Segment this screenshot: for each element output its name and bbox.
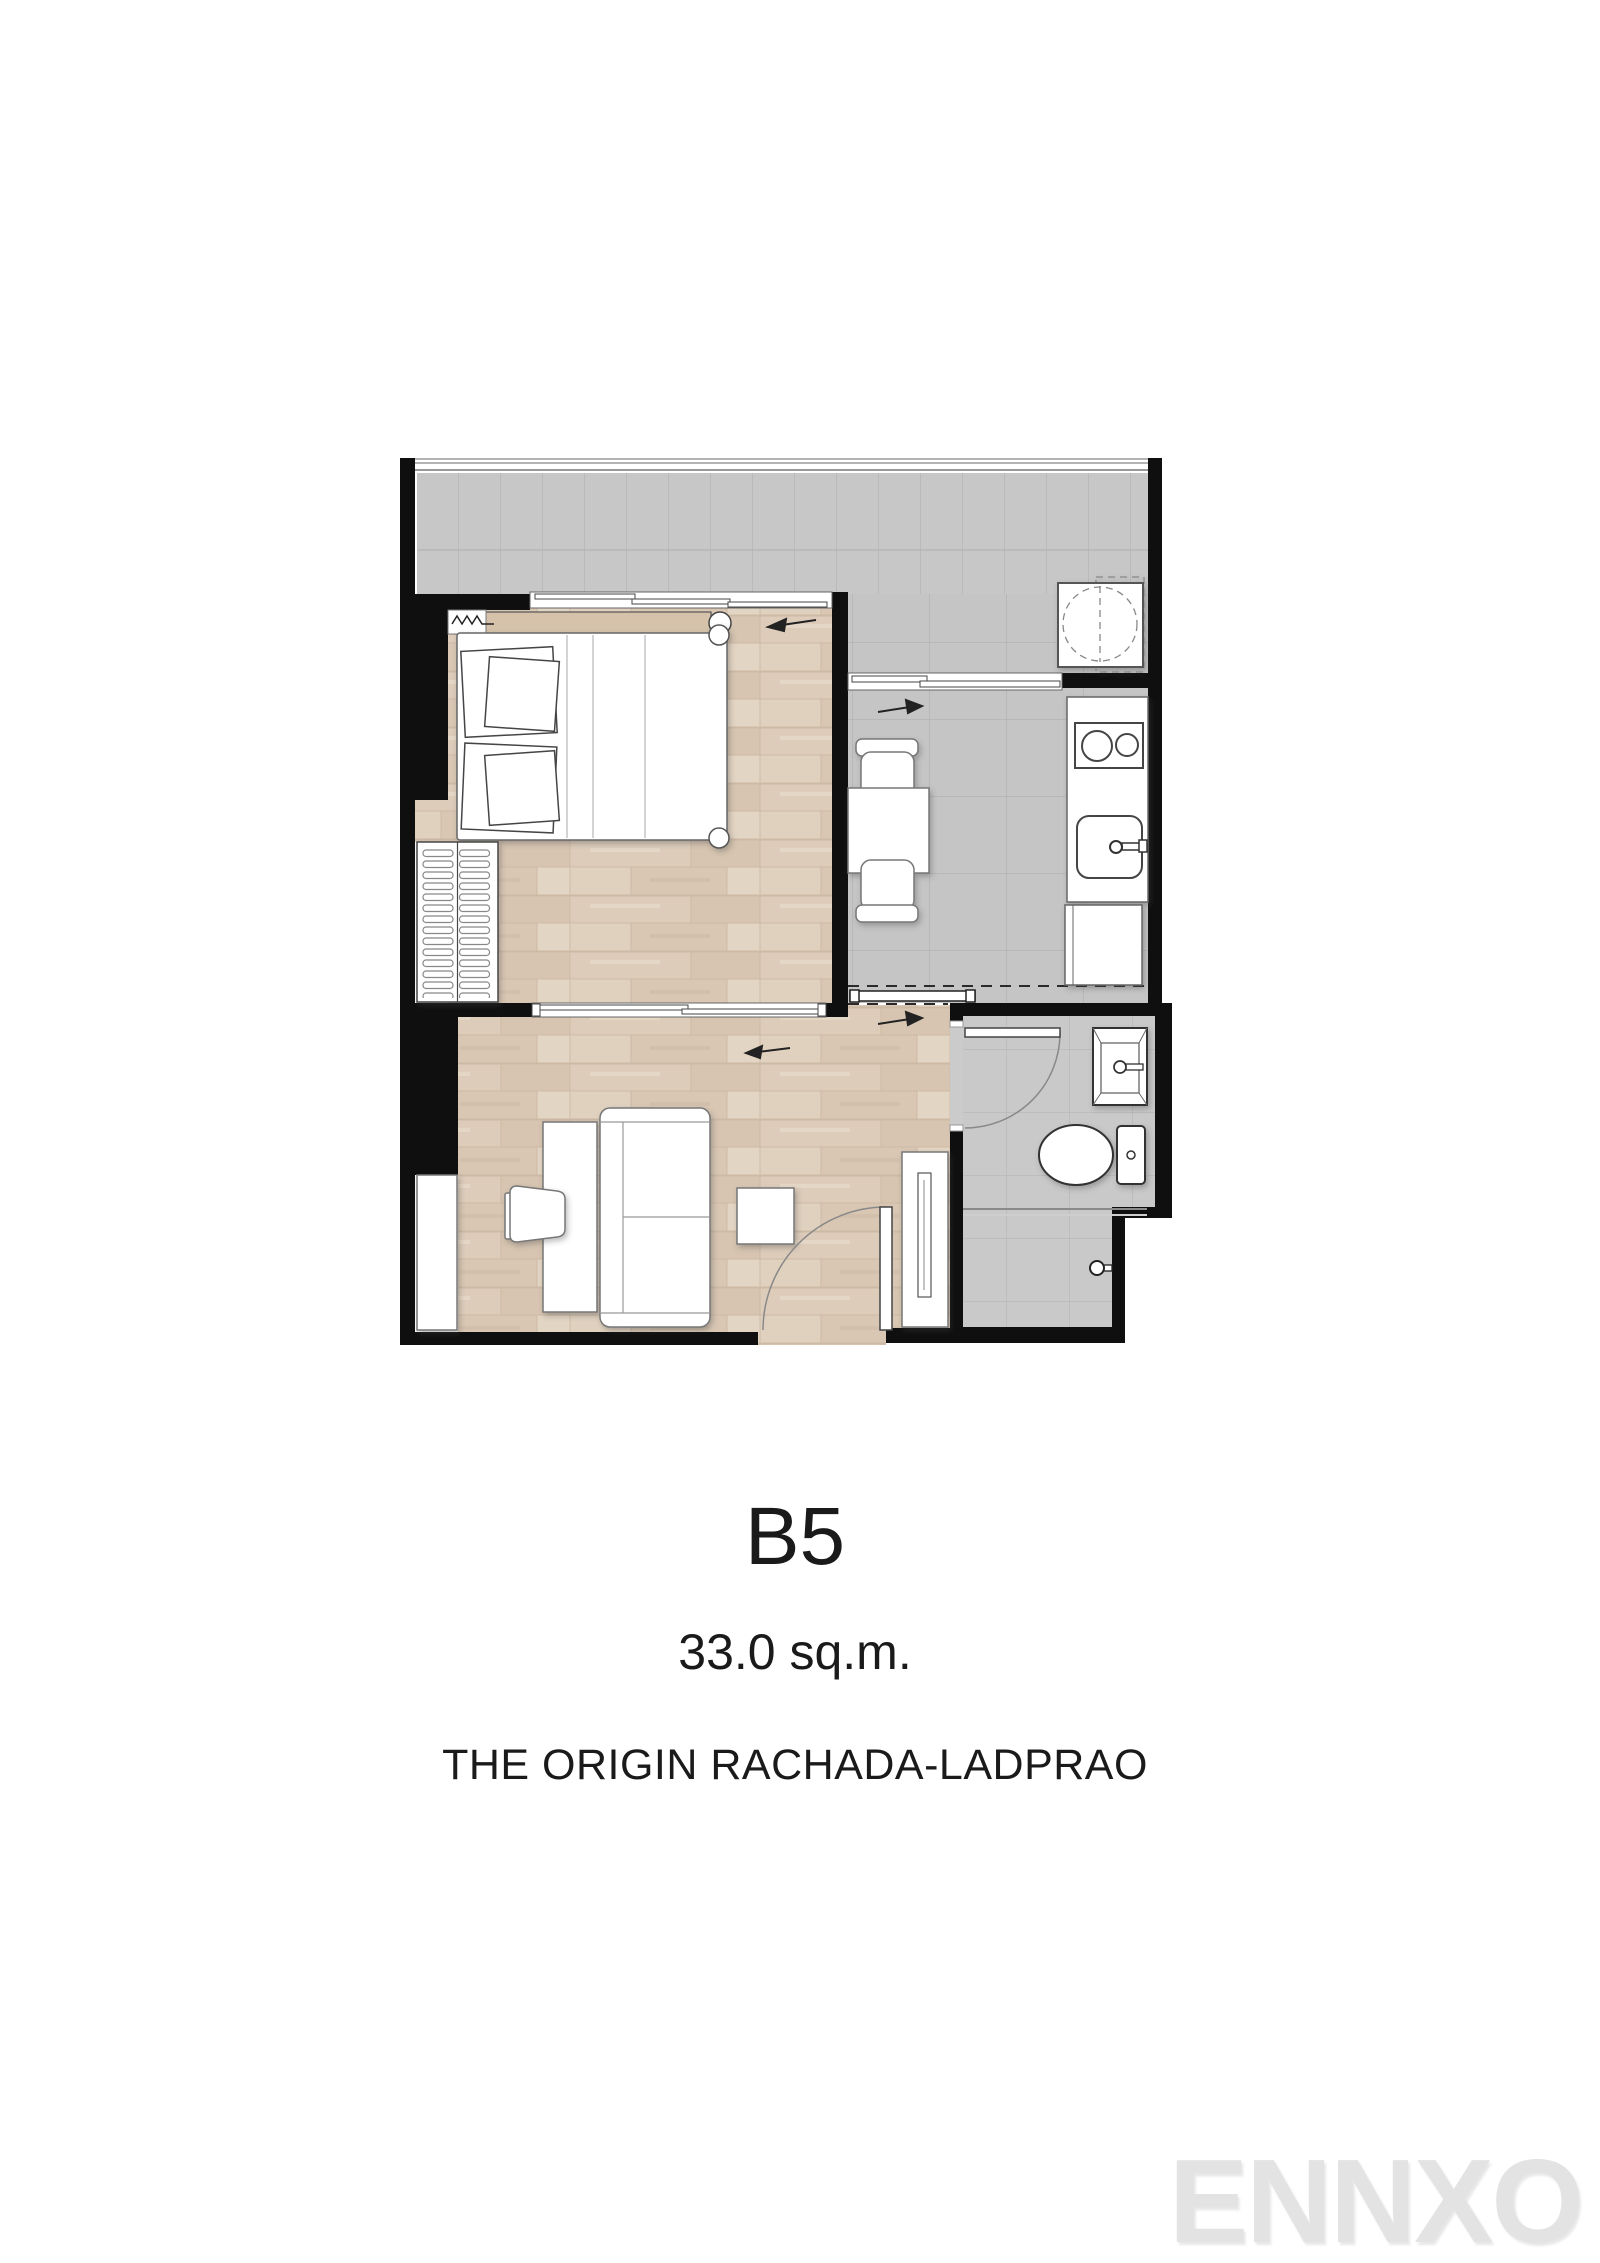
sliding-window-balcony-kitchen: [848, 673, 1062, 690]
kitchen-cabinet: [1065, 905, 1142, 985]
washing-machine: [1058, 577, 1144, 672]
desk-chair: [505, 1186, 565, 1242]
wardrobe: [417, 842, 498, 1002]
unit-area: 33.0 sq.m.: [395, 1627, 1195, 1677]
floor-plan: [0, 0, 1600, 2263]
tv-cabinet: [902, 1152, 948, 1327]
watermark: ENNXO: [1169, 2142, 1582, 2261]
toilet-icon: [1039, 1125, 1145, 1185]
balcony-railing: [415, 459, 1148, 470]
unit-code: B5: [395, 1496, 1195, 1578]
dining-chair: [856, 860, 918, 922]
floor-plan-page: B5 33.0 sq.m. THE ORIGIN RACHADA-LADPRAO…: [0, 0, 1600, 2263]
kitchen-sink-icon: [1077, 816, 1147, 878]
curtain-rail: [448, 610, 731, 634]
stove-icon: [1075, 723, 1143, 768]
kitchen-counter: [1067, 697, 1148, 902]
sofa: [600, 1108, 710, 1327]
wash-basin-icon: [1093, 1028, 1147, 1105]
storage-cabinet: [417, 1175, 457, 1330]
side-table: [737, 1188, 794, 1244]
bed: [457, 625, 729, 848]
project-name: THE ORIGIN RACHADA-LADPRAO: [395, 1744, 1195, 1787]
sliding-window-bedroom-living: [532, 1003, 826, 1017]
sliding-window-balcony-bedroom: [530, 592, 832, 608]
